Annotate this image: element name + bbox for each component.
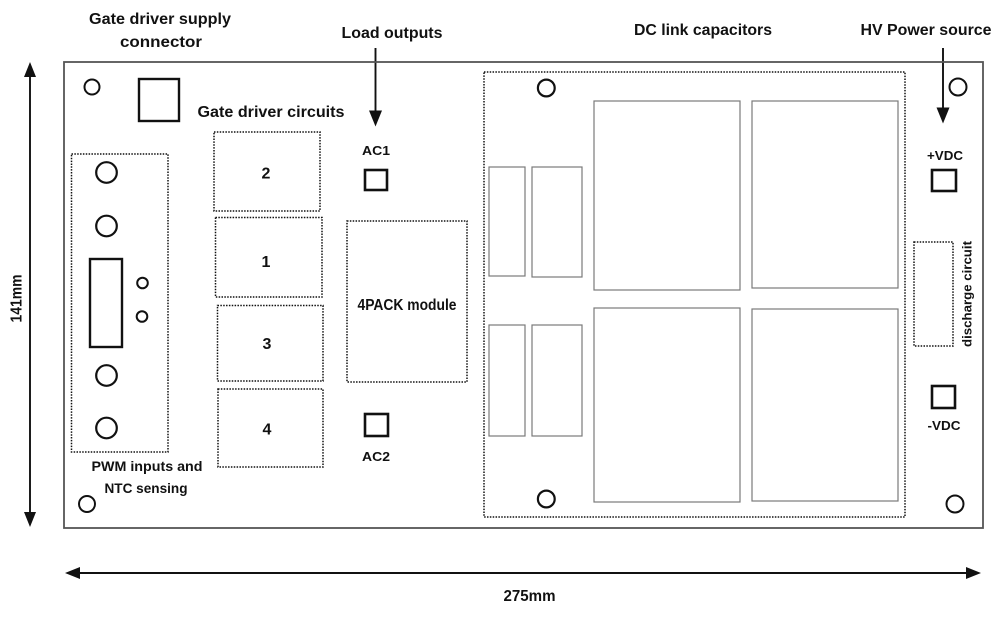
svg-text:HV Power source: HV Power source xyxy=(861,22,992,39)
svg-text:AC2: AC2 xyxy=(362,450,390,464)
svg-text:-VDC: -VDC xyxy=(928,418,962,433)
svg-text:2: 2 xyxy=(262,166,271,183)
svg-text:275mm: 275mm xyxy=(504,588,556,605)
svg-text:4PACK module: 4PACK module xyxy=(358,297,457,314)
svg-text:4: 4 xyxy=(263,422,272,439)
svg-text:+VDC: +VDC xyxy=(927,148,964,163)
svg-text:Gate driver supply: Gate driver supply xyxy=(89,11,231,28)
svg-text:Load outputs: Load outputs xyxy=(342,25,443,42)
svg-text:NTC sensing: NTC sensing xyxy=(105,480,188,496)
svg-text:141mm: 141mm xyxy=(9,275,26,323)
svg-text:PWM inputs and: PWM inputs and xyxy=(92,458,203,474)
svg-text:AC1: AC1 xyxy=(362,144,390,158)
svg-text:DC link capacitors: DC link capacitors xyxy=(634,22,772,39)
svg-text:Gate driver circuits: Gate driver circuits xyxy=(198,104,345,121)
svg-text:connector: connector xyxy=(120,34,202,51)
svg-text:1: 1 xyxy=(262,254,271,271)
svg-text:3: 3 xyxy=(263,336,272,353)
svg-text:discharge circuit: discharge circuit xyxy=(960,240,975,347)
